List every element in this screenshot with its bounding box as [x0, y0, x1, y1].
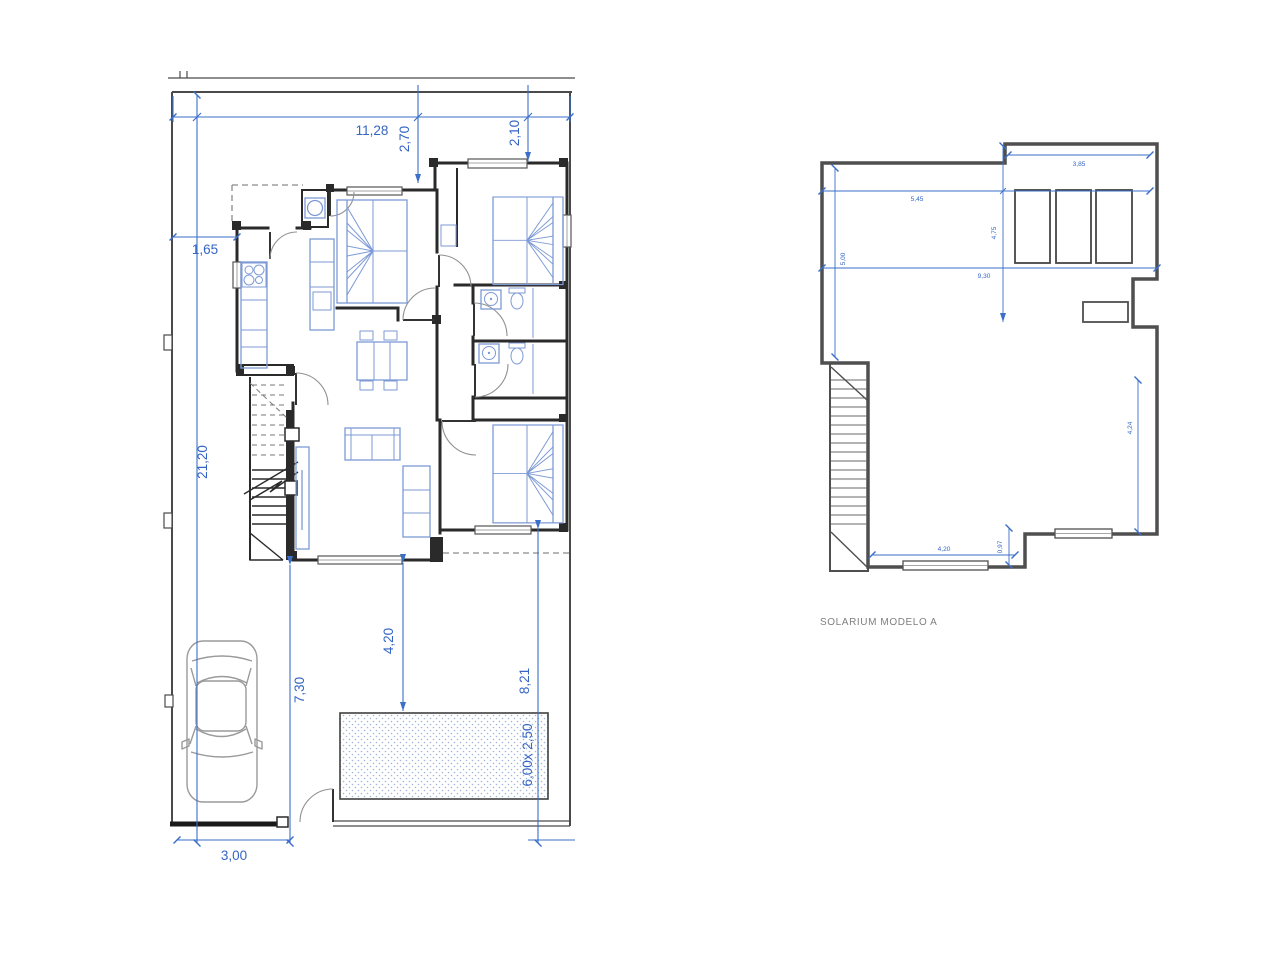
window — [475, 526, 531, 534]
hall-living-door — [296, 373, 328, 405]
bedroom3-bed — [493, 425, 563, 523]
dim-rear-center: 4,20 — [381, 628, 396, 654]
closet — [441, 225, 456, 246]
dim-side-setback: 1,65 — [192, 242, 218, 257]
fence-post — [164, 335, 172, 350]
window — [318, 556, 402, 564]
dim-front-setback-right: 2,10 — [507, 120, 522, 146]
dim-solarium-left-height: 5,00 — [840, 252, 847, 265]
site-plan: 11,28 2,70 2,10 1,65 21,20 7,30 4,20 8,2… — [164, 71, 575, 863]
dim-solarium-top-left: 5,45 — [911, 196, 924, 203]
dim-solarium-step-height: 0,97 — [997, 540, 1004, 553]
shelf-unit — [403, 466, 430, 537]
dim-solarium-bottom-width: 4,20 — [938, 546, 951, 553]
fence-post — [164, 513, 172, 528]
dim-solarium-middle-height: 4,75 — [991, 226, 998, 239]
dim-pool-size: 6,00x 2,50 — [520, 723, 535, 786]
fence-post — [165, 695, 173, 707]
sun-lounger — [1096, 190, 1132, 263]
bathroom2-fixtures — [479, 343, 533, 394]
solarium-caption: SOLARIUM MODELO A — [820, 617, 937, 628]
dim-rear-right: 8,21 — [517, 668, 532, 694]
window — [347, 187, 402, 195]
kitchen-door — [270, 232, 297, 259]
dim-gate-width: 3,00 — [221, 848, 247, 863]
solarium-railings — [903, 529, 1112, 570]
windows — [233, 159, 571, 564]
floor-plan-canvas: 11,28 2,70 2,10 1,65 21,20 7,30 4,20 8,2… — [0, 0, 1280, 960]
solarium-bench — [1083, 302, 1128, 322]
sofa — [345, 428, 400, 460]
car — [182, 641, 262, 802]
bedroom3-door — [442, 421, 476, 455]
kitchen-counter — [241, 262, 267, 368]
washing-machine — [305, 198, 325, 218]
screenshot-root: 11,28 2,70 2,10 1,65 21,20 7,30 4,20 8,2… — [0, 0, 1280, 960]
sun-loungers — [1015, 190, 1132, 322]
staircase — [244, 377, 299, 560]
dim-front-setback-left: 2,70 — [397, 126, 412, 152]
window — [468, 159, 527, 168]
master-bedroom-door — [403, 288, 435, 320]
gate-post — [277, 817, 288, 827]
wardrobe — [310, 239, 334, 330]
solarium-staircase — [830, 363, 868, 571]
dining-table — [357, 331, 407, 390]
window — [233, 262, 241, 288]
entry-porch-dashed — [232, 185, 303, 225]
house-walls — [232, 158, 568, 562]
bedroom2-door — [439, 255, 471, 287]
dim-solarium-top-right: 3,85 — [1073, 161, 1086, 168]
dim-solarium-middle-width: 9,30 — [978, 273, 991, 280]
solarium-plan: 3,85 5,45 5,00 9,30 4,75 4,20 0,97 4,24 … — [820, 144, 1157, 628]
master-bed — [337, 200, 407, 303]
gate-door — [300, 789, 333, 822]
bedroom2-bed — [493, 197, 563, 285]
window — [563, 215, 571, 247]
swimming-pool — [340, 713, 548, 799]
sun-lounger — [1015, 190, 1050, 263]
bathroom1-door — [474, 303, 507, 336]
wall-pillars — [232, 158, 568, 560]
dim-solarium-right-height: 4,24 — [1127, 421, 1134, 434]
dim-plot-depth: 21,20 — [195, 445, 210, 479]
bathroom2-door — [475, 364, 508, 397]
dim-plot-width: 11,28 — [356, 123, 389, 138]
dim-rear-left: 7,30 — [292, 677, 307, 703]
sun-lounger — [1056, 190, 1091, 263]
